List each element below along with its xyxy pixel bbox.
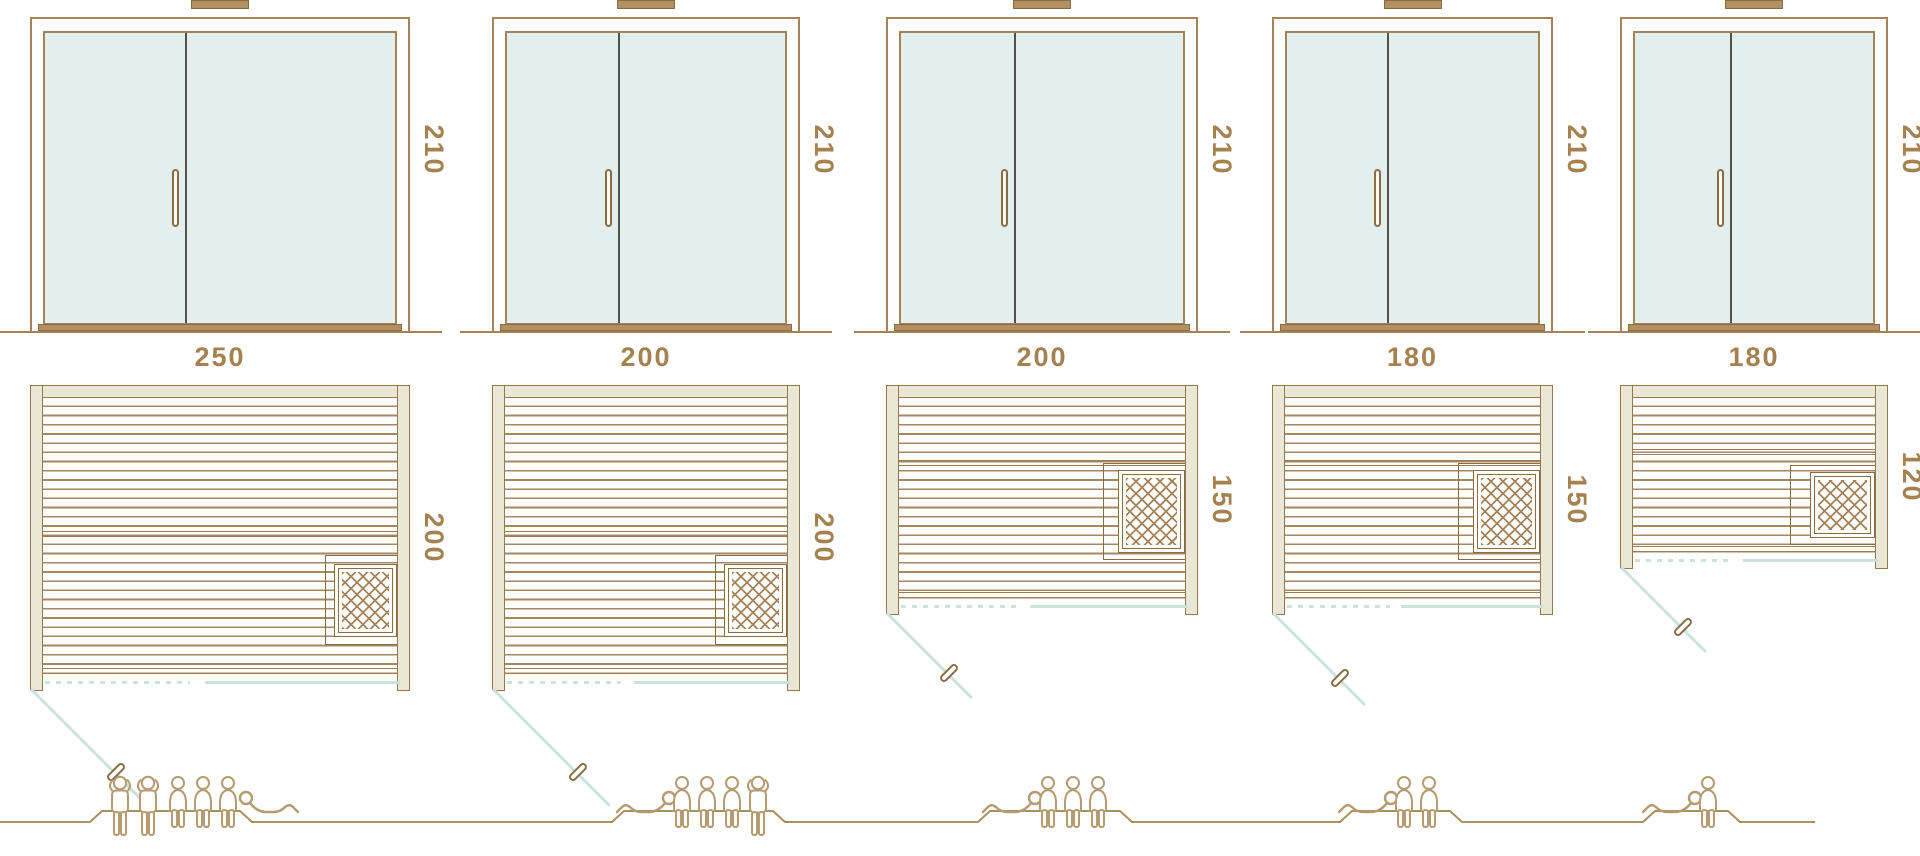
plan-width-label: 200 — [886, 342, 1198, 373]
floor-plan — [492, 385, 800, 691]
door-threshold — [1628, 324, 1880, 331]
door-divider — [618, 33, 620, 323]
person-standing-icon — [748, 777, 768, 835]
door-swing-line — [1272, 612, 1366, 706]
ground-line — [460, 331, 832, 333]
plan-wall-left — [492, 385, 505, 691]
sauna-column-2: 210200200 — [492, 0, 800, 856]
plan-depth-label: 200 — [419, 498, 449, 578]
roof-vent — [1384, 0, 1442, 9]
floor-plan — [30, 385, 410, 691]
person-seated-icon — [724, 777, 740, 827]
bench-edge-band — [505, 668, 787, 674]
ground-line — [854, 331, 1230, 333]
door-divider — [185, 33, 187, 323]
door-threshold — [38, 324, 402, 331]
person-lying-icon — [1339, 792, 1397, 812]
front-glass-line — [1743, 559, 1878, 562]
plan-wall-top — [30, 385, 410, 398]
floor-plan — [886, 385, 1198, 615]
person-seated-icon — [1090, 777, 1106, 827]
plan-wall-right — [1540, 385, 1553, 615]
door-height-label: 210 — [809, 110, 839, 190]
door-glass — [899, 31, 1185, 325]
roof-vent — [191, 0, 249, 9]
heater-lattice — [342, 572, 389, 629]
person-seated-icon — [170, 777, 186, 827]
door-handle-icon — [1717, 169, 1724, 227]
door-divider — [1387, 33, 1389, 323]
heater-box — [334, 564, 397, 637]
plan-width-label: 180 — [1620, 342, 1888, 373]
heater-lattice — [1481, 478, 1532, 545]
bench-edge-band — [505, 531, 787, 537]
front-glass-line — [1030, 605, 1188, 608]
door-elevation — [30, 17, 410, 333]
door-threshold — [500, 324, 792, 331]
roof-vent — [1725, 0, 1783, 9]
sauna-column-4: 210180150 — [1272, 0, 1553, 856]
ground-line — [1240, 331, 1585, 333]
capacity-figures-svg — [0, 770, 1920, 856]
person-lying-icon — [983, 792, 1041, 812]
plan-wall-right — [397, 385, 410, 691]
door-threshold — [1280, 324, 1545, 331]
heater-box — [1118, 470, 1185, 553]
plan-depth-label: 150 — [1207, 460, 1237, 540]
ground-line — [1588, 331, 1920, 333]
heater-lattice — [1126, 478, 1177, 545]
person-seated-icon — [195, 777, 211, 827]
plan-wall-right — [1875, 385, 1888, 569]
door-height-label: 210 — [1562, 110, 1592, 190]
door-handle-icon — [605, 169, 612, 227]
heater-box — [724, 564, 787, 637]
heater-lattice — [1818, 480, 1867, 530]
heater-inner-frame — [1477, 474, 1536, 549]
roof-vent — [617, 0, 675, 9]
sauna-column-1: 210250200 — [30, 0, 410, 856]
plan-wall-top — [492, 385, 800, 398]
sauna-size-diagram: 2102502002102002002102001502101801502101… — [0, 0, 1920, 856]
plan-wall-left — [1272, 385, 1285, 615]
door-height-label: 210 — [419, 110, 449, 190]
heater-lattice — [732, 572, 779, 629]
plan-depth-label: 150 — [1562, 460, 1592, 540]
plan-wall-right — [787, 385, 800, 691]
door-threshold — [894, 324, 1190, 331]
door-height-label: 210 — [1897, 110, 1920, 190]
door-elevation — [886, 17, 1198, 333]
plan-wall-top — [886, 385, 1198, 398]
floor-plan — [1620, 385, 1888, 569]
door-swing-line — [886, 612, 973, 699]
door-divider — [1014, 33, 1016, 323]
door-elevation — [1620, 17, 1888, 333]
door-handle-icon — [1001, 169, 1008, 227]
plan-wall-right — [1185, 385, 1198, 615]
person-seated-icon — [1700, 777, 1716, 827]
ground-line — [0, 331, 442, 333]
plan-width-label: 200 — [492, 342, 800, 373]
plan-wall-left — [30, 385, 43, 691]
door-glass — [1285, 31, 1540, 325]
person-seated-icon — [1396, 777, 1412, 827]
plan-depth-label: 120 — [1897, 437, 1920, 517]
plan-width-label: 250 — [30, 342, 410, 373]
heater-inner-frame — [338, 568, 393, 633]
person-seated-icon — [1040, 777, 1056, 827]
plan-wall-left — [886, 385, 899, 615]
door-opening-dashed-line — [1635, 559, 1733, 562]
heater-inner-frame — [728, 568, 783, 633]
door-glass — [1633, 31, 1875, 325]
person-lying-icon — [1643, 792, 1701, 812]
door-divider — [1730, 33, 1732, 323]
person-seated-icon — [674, 777, 690, 827]
floor-plan — [1272, 385, 1553, 615]
heater-inner-frame — [1814, 476, 1871, 534]
person-seated-icon — [1065, 777, 1081, 827]
plan-wall-left — [1620, 385, 1633, 569]
plan-wall-top — [1272, 385, 1553, 398]
door-glass — [43, 31, 397, 325]
bench-edge-band — [899, 592, 1185, 598]
bench-edge-band — [1285, 592, 1540, 598]
door-handle-icon — [1374, 169, 1381, 227]
bench-edge-band — [1633, 546, 1875, 552]
door-height-label: 210 — [1207, 110, 1237, 190]
door-opening-dashed-line — [901, 605, 1017, 608]
front-glass-line — [1401, 605, 1543, 608]
door-handle-icon — [172, 169, 179, 227]
door-opening-dashed-line — [45, 681, 190, 684]
person-standing-icon — [110, 777, 130, 835]
bench-edge-band — [43, 531, 397, 537]
heater-box — [1473, 470, 1540, 553]
sauna-column-5: 210180120 — [1620, 0, 1888, 856]
person-seated-icon — [220, 777, 236, 827]
person-lying-icon — [240, 792, 298, 812]
plan-depth-label: 200 — [809, 498, 839, 578]
person-seated-icon — [1421, 777, 1437, 827]
door-elevation — [1272, 17, 1553, 333]
person-seated-icon — [699, 777, 715, 827]
person-lying-icon — [617, 792, 675, 812]
front-glass-line — [205, 681, 400, 684]
front-glass-line — [634, 681, 790, 684]
heater-inner-frame — [1122, 474, 1181, 549]
roof-vent — [1013, 0, 1071, 9]
sauna-column-3: 210200150 — [886, 0, 1198, 856]
door-elevation — [492, 17, 800, 333]
person-standing-icon — [138, 777, 158, 835]
door-opening-dashed-line — [1287, 605, 1390, 608]
heater-box — [1810, 472, 1875, 538]
door-opening-dashed-line — [507, 681, 621, 684]
door-swing-line — [1620, 566, 1707, 653]
plan-width-label: 180 — [1272, 342, 1553, 373]
capacity-figures-row — [0, 770, 1920, 856]
plan-wall-top — [1620, 385, 1888, 398]
door-glass — [505, 31, 787, 325]
bench-edge-band — [1633, 449, 1875, 455]
bench-edge-band — [43, 668, 397, 674]
